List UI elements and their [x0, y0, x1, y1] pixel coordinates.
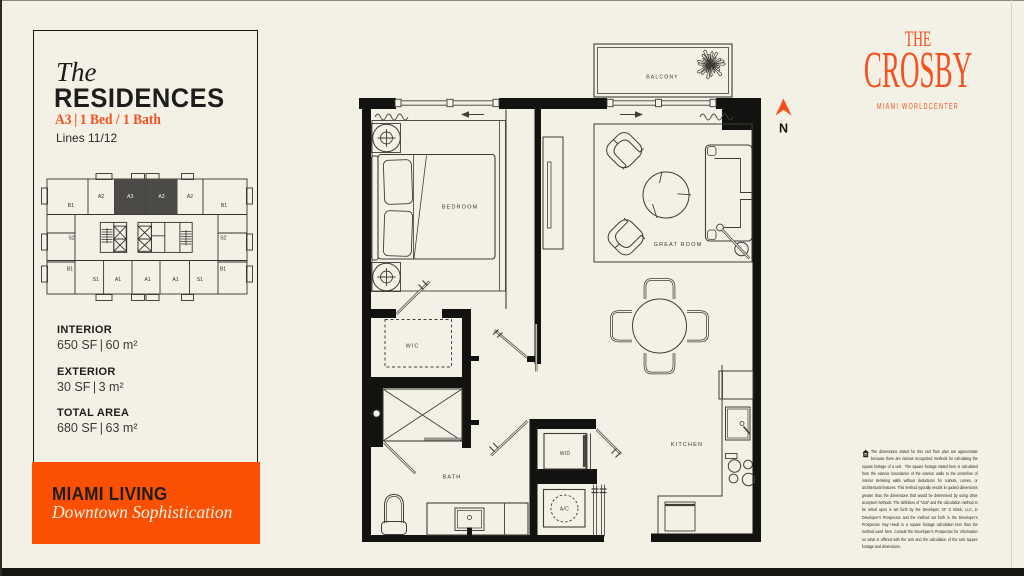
svg-text:GREAT ROOM: GREAT ROOM [654, 242, 703, 248]
svg-text:BALCONY: BALCONY [646, 75, 679, 81]
svg-text:WIC: WIC [406, 344, 420, 350]
svg-text:BEDROOM: BEDROOM [442, 205, 479, 211]
svg-text:KITCHEN: KITCHEN [671, 442, 703, 448]
svg-text:A/C: A/C [560, 507, 569, 513]
svg-text:BATH: BATH [443, 475, 462, 481]
svg-text:W/D: W/D [560, 451, 571, 457]
svg-text:N: N [779, 122, 788, 136]
